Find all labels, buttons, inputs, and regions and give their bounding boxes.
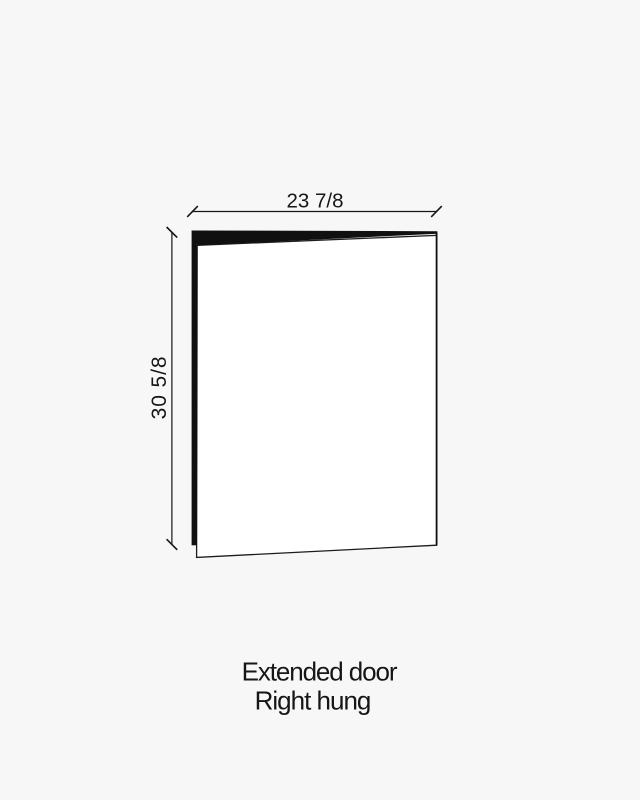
svg-text:Right hung: Right hung xyxy=(255,686,371,716)
svg-text:Extended door: Extended door xyxy=(242,657,398,687)
svg-text:23 7/8: 23 7/8 xyxy=(287,189,344,212)
svg-text:30 5/8: 30 5/8 xyxy=(148,356,171,420)
